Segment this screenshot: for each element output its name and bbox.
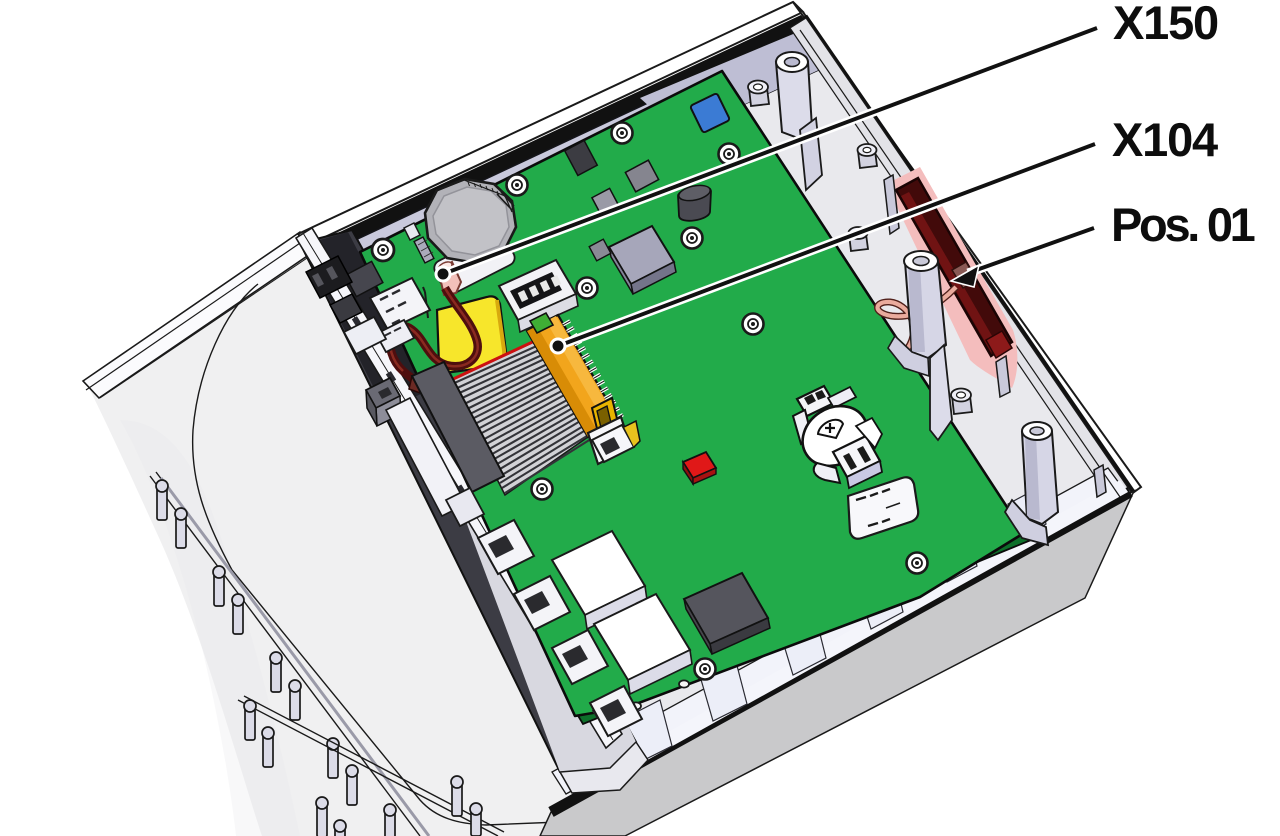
svg-text:Pos. 01: Pos. 01 bbox=[1111, 198, 1255, 251]
svg-text:X104: X104 bbox=[1112, 113, 1218, 166]
svg-text:X150: X150 bbox=[1113, 0, 1218, 49]
